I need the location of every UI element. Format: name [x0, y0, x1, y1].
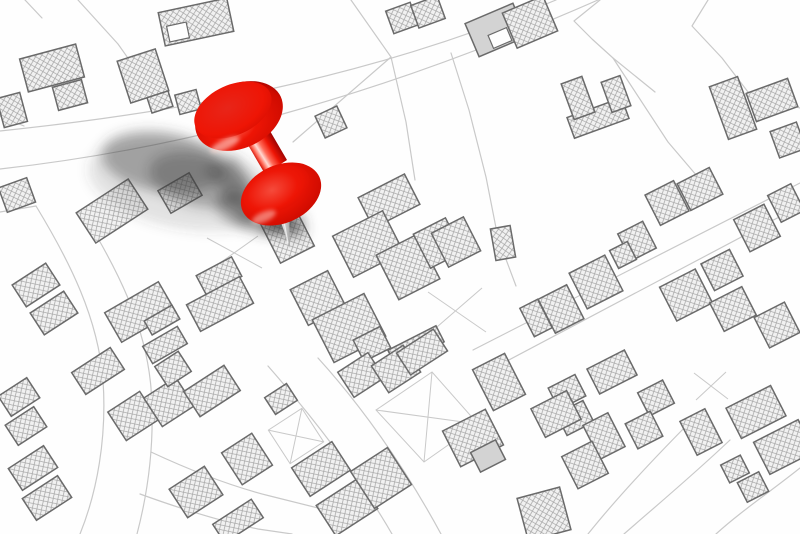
- building: [660, 269, 713, 321]
- building: [473, 353, 526, 410]
- building: [517, 487, 571, 534]
- building: [746, 78, 798, 121]
- building: [561, 76, 595, 119]
- building: [770, 122, 800, 158]
- parcel-line: [574, 0, 697, 176]
- road-edge: [473, 183, 800, 350]
- building: [754, 302, 800, 348]
- map-canvas: [0, 0, 800, 534]
- building: [587, 350, 637, 394]
- map-illustration: [0, 0, 800, 534]
- buildings: [0, 0, 800, 534]
- parcel-line: [391, 57, 415, 180]
- building: [710, 287, 757, 332]
- building: [315, 106, 347, 138]
- building: [0, 92, 27, 127]
- building: [72, 348, 125, 395]
- building: [292, 442, 351, 497]
- building: [638, 380, 675, 416]
- building: [625, 411, 663, 449]
- building: [569, 255, 623, 309]
- building: [680, 409, 722, 456]
- building: [768, 184, 800, 223]
- vacant-parcel-x: [694, 372, 728, 400]
- building: [169, 466, 223, 517]
- building: [265, 384, 298, 415]
- building: [490, 226, 515, 261]
- parcel-line: [25, 0, 42, 18]
- building-courtyard: [167, 22, 190, 42]
- building: [734, 204, 781, 252]
- building: [222, 433, 273, 484]
- building: [709, 77, 756, 140]
- road-edge: [624, 440, 730, 534]
- building: [184, 365, 241, 416]
